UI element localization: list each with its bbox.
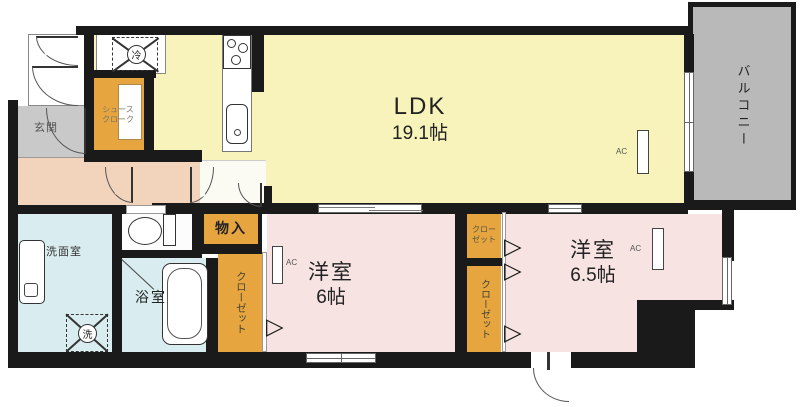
wall-toilet-bottom bbox=[118, 250, 202, 258]
ac-label-bedroom2: AC bbox=[630, 244, 641, 253]
toilet-tank bbox=[163, 214, 176, 246]
exterior-door-leaf bbox=[547, 352, 550, 370]
kitchen-sink bbox=[226, 104, 248, 144]
window-bedroom1-bottom bbox=[306, 353, 376, 363]
stove bbox=[223, 35, 251, 69]
folding-door-arrow-icon: ▷ bbox=[266, 316, 284, 339]
ac-unit-bedroom2 bbox=[652, 228, 664, 270]
balcony-label: バルコニー bbox=[688, 10, 796, 202]
closet-bedroom2-tall-label: クローゼット bbox=[467, 266, 501, 352]
toilet-bowl bbox=[128, 217, 162, 245]
folding-door-arrow-icon: ▷ bbox=[504, 260, 522, 283]
folding-door-arrow-icon: ▷ bbox=[504, 236, 522, 259]
washer-icon: 洗 bbox=[78, 324, 97, 343]
wall-washroom-divider bbox=[112, 205, 122, 352]
bedroom1-label: 洋室 6帖 bbox=[287, 256, 375, 314]
wall-right-top bbox=[722, 209, 734, 261]
folding-door-arrow-icon: ▷ bbox=[504, 322, 522, 345]
wall-under-fridge bbox=[92, 70, 156, 78]
exterior-door-gap bbox=[531, 352, 571, 368]
shoe-closet-label: シュース クローク bbox=[92, 100, 144, 130]
exterior-door-arc bbox=[533, 368, 569, 402]
wall-midcloset-divider bbox=[455, 258, 502, 266]
wall-shoe-closet-right bbox=[144, 78, 154, 160]
ldk-label: LDK 19.1帖 bbox=[350, 86, 490, 152]
ac-label-bedroom1: AC bbox=[286, 258, 297, 267]
refrigerator-icon: 冷 bbox=[127, 45, 146, 64]
wall-top bbox=[76, 26, 690, 35]
wall-midcloset-left bbox=[455, 210, 467, 352]
bathroom-label: 浴室 bbox=[122, 288, 180, 306]
sliding-door-ldk-bedroom1 bbox=[318, 204, 422, 213]
bedroom2-label: 洋室 6.5帖 bbox=[534, 234, 652, 292]
wall-nook-stub bbox=[264, 186, 272, 214]
wall-under-shoe-closet bbox=[84, 150, 202, 162]
window-ldk-balcony bbox=[684, 72, 694, 172]
wall-kitchen-stub bbox=[252, 34, 264, 92]
wall-left bbox=[8, 100, 18, 368]
wall-pillar-bottom-right bbox=[637, 300, 695, 368]
ac-unit-bedroom1 bbox=[272, 246, 283, 284]
washroom-label: 洗面室 bbox=[32, 244, 96, 260]
wall-hall-washroom bbox=[8, 205, 200, 214]
floor-plan: 冷 洗 AC AC AC ▷ ▷ ▷ ▷ LDK 19.1帖 バルコニー 洋室 … bbox=[0, 0, 800, 407]
storage-label: 物入 bbox=[200, 208, 262, 248]
closet-bedroom2-small-label: クロー ゼット bbox=[467, 214, 501, 256]
ac-unit-ldk bbox=[637, 130, 649, 174]
toilet-door bbox=[126, 205, 166, 214]
sliding-door-ldk-bedroom2 bbox=[548, 204, 582, 213]
window-bedroom2-right bbox=[722, 257, 732, 305]
closet-bedroom1-label: クローゼット bbox=[218, 252, 262, 352]
entrance-label: 玄関 bbox=[24, 120, 68, 136]
ac-label-ldk: AC bbox=[616, 147, 627, 156]
